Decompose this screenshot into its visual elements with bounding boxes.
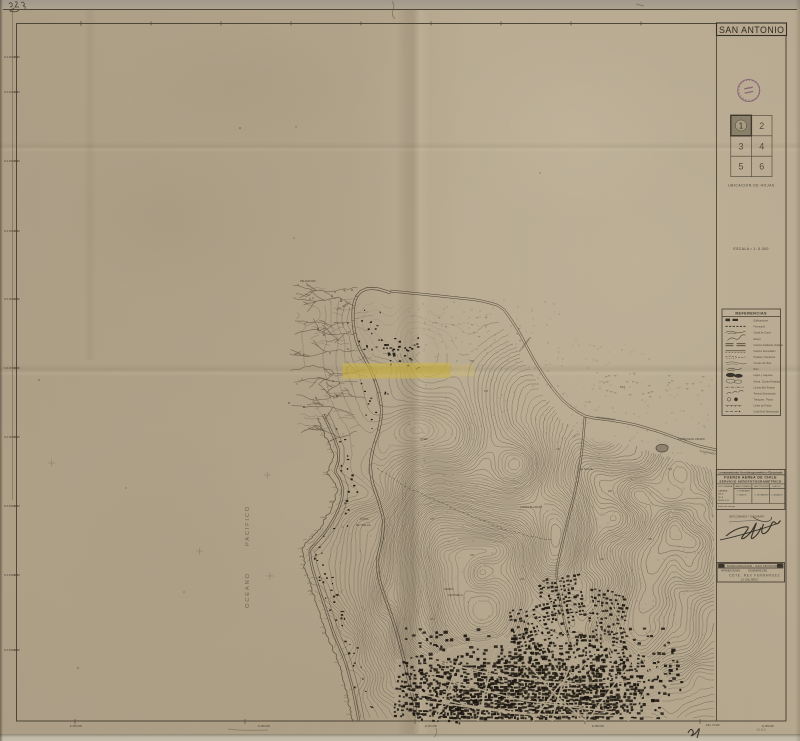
svg-text:QUEB.: QUEB.	[420, 437, 428, 441]
svg-text:Edificaciones: Edificaciones	[754, 320, 769, 323]
svg-text:E 256.000: E 256.000	[258, 724, 270, 728]
svg-text:PACIFICO: PACIFICO	[245, 505, 251, 546]
svg-text:JEFE COMISION Y TOPOGRAFO: JEFE COMISION Y TOPOGRAFO	[729, 516, 764, 519]
svg-text:Rios: Rios	[754, 368, 760, 371]
svg-text:1: 1	[739, 121, 744, 131]
svg-text:375: 375	[430, 518, 435, 521]
svg-text:OCEANO: OCEANO	[245, 572, 251, 608]
svg-text:4: 4	[759, 141, 764, 151]
svg-text:ZEISS LUJ: ZEISS LUJ	[718, 500, 729, 502]
svg-text:E 257.000: E 257.000	[425, 724, 437, 728]
svg-text:DIBUJO: DIBUJO	[773, 486, 781, 488]
svg-text:Fecha de entrega :: Fecha de entrega :	[718, 505, 737, 508]
svg-text:3: 3	[738, 141, 743, 151]
svg-text:PUNTA: PUNTA	[360, 517, 369, 521]
svg-text:205: 205	[608, 490, 613, 493]
svg-text:435: 435	[484, 390, 489, 393]
svg-text:290: 290	[600, 558, 605, 561]
svg-text:LO GALLARDO: LO GALLARDO	[741, 578, 758, 581]
svg-text:CDTE. REX FERNANDEZ: CDTE. REX FERNANDEZ	[729, 574, 780, 578]
svg-text:5.10: 5.10	[620, 385, 626, 389]
svg-text:5: 5	[738, 162, 743, 172]
svg-text:2: 2	[759, 121, 764, 131]
svg-text:Camino Secundario: Camino Secundario	[754, 350, 777, 353]
svg-text:Limite de Predio: Limite de Predio	[754, 405, 773, 408]
svg-text:ESC 1:5.000: ESC 1:5.000	[706, 724, 720, 727]
svg-text:DE TRALCA: DE TRALCA	[356, 523, 371, 527]
svg-text:Lagos y Lagunas: Lagos y Lagunas	[754, 374, 774, 377]
svg-text:TRANQUE EL PEUMO: TRANQUE EL PEUMO	[678, 437, 705, 441]
svg-text:AERO TRIANG.: AERO TRIANG.	[736, 485, 752, 488]
svg-text:Lineas Alta Tension: Lineas Alta Tension	[754, 386, 776, 389]
svg-text:Camino Asfaltado, Ripiado: Camino Asfaltado, Ripiado	[754, 344, 784, 347]
svg-text:LOMAS BLANCAS: LOMAS BLANCAS	[520, 505, 542, 509]
svg-text:C. MORALES F.: C. MORALES F.	[755, 494, 771, 497]
svg-text:E 258.000: E 258.000	[592, 724, 604, 728]
svg-text:6: 6	[759, 162, 764, 172]
svg-text:265: 265	[648, 538, 653, 541]
svg-text:465: 465	[470, 554, 475, 557]
svg-text:130: 130	[556, 448, 561, 451]
svg-text:CAMARA: CAMARA	[718, 490, 728, 493]
svg-text:I. MUNICIPALIDAD - SAN ANTONIO: I. MUNICIPALIDAD - SAN ANTONIO	[724, 564, 778, 568]
svg-text:295: 295	[470, 360, 475, 363]
svg-text:19 8 5: 19 8 5	[756, 728, 766, 732]
svg-text:Levantamiento Aerofotogramétri: Levantamiento Aerofotogramétrico Ejecuta…	[719, 471, 783, 475]
svg-text:230: 230	[520, 578, 525, 581]
svg-text:1: TRIMIRAN: 1: TRIMIRAN	[737, 490, 750, 493]
svg-text:Cota Nivel Demarcado: Cota Nivel Demarcado	[754, 411, 780, 414]
svg-text:Huellas y Senderos: Huellas y Senderos	[754, 356, 776, 359]
svg-text:WILD: WILD	[718, 494, 724, 496]
svg-text:SERVICIO AEROFOTOGRAMETRICO: SERVICIO AEROFOTOGRAMETRICO	[719, 479, 781, 483]
svg-text:Arena , Dunas Rodadas: Arena , Dunas Rodadas	[754, 380, 781, 383]
svg-text:Estero: Estero	[754, 338, 762, 341]
svg-text:355: 355	[620, 618, 625, 621]
svg-text:DICIEMBRE 1981: DICIEMBRE 1981	[748, 570, 768, 573]
svg-text:RESTITUCION: RESTITUCION	[754, 486, 769, 488]
svg-text:ESCALA • 1: 5.000: ESCALA • 1: 5.000	[733, 247, 768, 251]
svg-text:Ferrocarril: Ferrocarril	[754, 326, 766, 329]
svg-text:Terreno Demarcado: Terreno Demarcado	[754, 392, 777, 395]
svg-text:SAN ANTONIO: SAN ANTONIO	[719, 25, 784, 35]
svg-text:Tranques , Pozos: Tranques , Pozos	[754, 399, 774, 402]
svg-text:C. ALAMOS: C. ALAMOS	[771, 494, 783, 497]
svg-text:A SANTIAGO: A SANTIAGO	[700, 449, 716, 456]
svg-text:REFERENCIAS: REFERENCIAS	[735, 311, 767, 315]
svg-text:Canal de Const.: Canal de Const.	[754, 332, 772, 335]
svg-text:APROBACIONES :: APROBACIONES :	[721, 570, 742, 573]
svg-text:CENTINELA: CENTINELA	[448, 593, 463, 597]
svg-text:FOTOGRAFIA: FOTOGRAFIA	[718, 485, 733, 488]
svg-text:315: 315	[668, 468, 673, 471]
svg-text:RC-8: RC-8	[718, 497, 724, 499]
svg-text:Curvas de Nivel: Curvas de Nivel	[754, 362, 772, 365]
svg-text:180: 180	[430, 618, 435, 621]
svg-text:UBICACION DE HOJAS: UBICACION DE HOJAS	[728, 184, 775, 188]
svg-text:PELANCURA: PELANCURA	[300, 279, 316, 283]
svg-text:EL SAUCE: EL SAUCE	[580, 467, 593, 471]
svg-text:CERRO: CERRO	[444, 587, 453, 591]
svg-text:V. DIAZ N.: V. DIAZ N.	[737, 494, 748, 497]
svg-text:E 255.000: E 255.000	[70, 724, 82, 728]
